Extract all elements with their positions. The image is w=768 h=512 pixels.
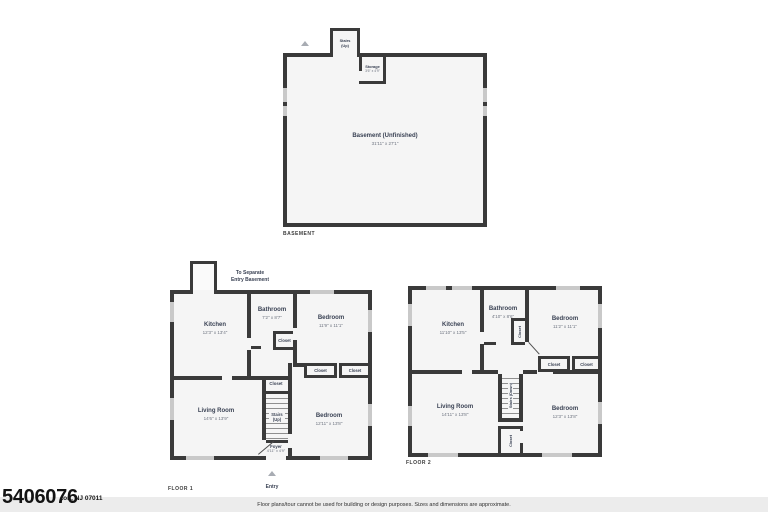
room-name: Bedroom xyxy=(296,413,362,421)
stairs-label: Stairs (Up) xyxy=(340,39,351,48)
window xyxy=(170,398,174,420)
door-opening xyxy=(520,431,523,443)
stairs-down: Stairs (Down) xyxy=(502,374,519,418)
room-dims: 11'9" x 11'1" xyxy=(298,323,364,329)
wall xyxy=(498,418,523,422)
room-dims: 31'11" x 27'1" xyxy=(320,141,450,147)
door-opening xyxy=(266,456,286,460)
room-dims: 4'11" x 4'9" xyxy=(260,449,292,454)
window xyxy=(310,290,334,294)
room-name: Bedroom xyxy=(534,406,596,414)
room-dims: 11'10" x 13'5" xyxy=(424,330,482,336)
arrow-up-icon xyxy=(301,41,309,46)
entry-label: Entry xyxy=(259,484,285,490)
room-label-bedroom-bottom: Bedroom 12'3" x 13'8" xyxy=(534,406,596,420)
window xyxy=(368,310,372,332)
room-dims: 12'11" x 13'8" xyxy=(296,421,362,427)
closet-hall: Closet xyxy=(264,381,288,386)
closet-label: Closet xyxy=(314,368,327,373)
room-label-bedroom-top: Bedroom 11'2" x 11'1" xyxy=(534,316,596,330)
basement-caption: BASEMENT xyxy=(283,231,315,237)
closet-bedroom-left: Closet xyxy=(538,356,570,372)
room-label-kitchen: Kitchen 11'10" x 13'5" xyxy=(424,322,482,336)
arrow-up-icon xyxy=(268,471,276,476)
room-name: Kitchen xyxy=(185,322,245,330)
entry-marker: Entry xyxy=(259,465,285,496)
closet-bedroom-left: Closet xyxy=(304,363,337,378)
room-name: Basement (Unfinished) xyxy=(320,133,450,141)
listing-number-watermark: 5406076 xyxy=(2,487,78,507)
room-name: Bedroom xyxy=(298,315,364,323)
wall xyxy=(412,370,462,374)
window xyxy=(186,456,214,460)
stairs-label: Stairs (Down) xyxy=(508,381,513,410)
disclaimer-text: Floor plans/tour cannot be used for buil… xyxy=(257,502,510,508)
room-label-bedroom-top: Bedroom 11'9" x 11'1" xyxy=(298,315,364,329)
room-label-foyer: Foyer 4'11" x 4'9" xyxy=(260,444,292,454)
window xyxy=(542,453,572,457)
room-name: Bathroom xyxy=(251,307,293,315)
wall xyxy=(525,290,529,342)
room-dims: 12'3" x 13'4" xyxy=(185,330,245,336)
room-dims: 11'2" x 11'1" xyxy=(534,324,596,330)
window xyxy=(408,406,412,426)
window xyxy=(408,304,412,326)
stairs-up: Stairs (Up) xyxy=(266,394,288,440)
wall xyxy=(484,342,496,345)
closet-label: Closet xyxy=(349,368,362,373)
wall xyxy=(293,294,297,328)
room-label-bathroom: Bathroom 7'2" x 8'7" xyxy=(251,307,293,321)
closet-bedroom-right: Closet xyxy=(339,363,368,378)
room-label-living-room: Living Room 14'6" x 13'9" xyxy=(186,408,246,422)
wall xyxy=(472,370,498,374)
closet-label: Closet xyxy=(278,338,291,343)
disclaimer-bar: Floor plans/tour cannot be used for buil… xyxy=(0,497,768,512)
window xyxy=(483,106,487,116)
storage-room: Storage 3'6" x 4'9" xyxy=(359,57,386,84)
window xyxy=(598,304,602,328)
window xyxy=(452,286,472,290)
window xyxy=(556,286,580,290)
window xyxy=(483,88,487,102)
room-dims: 14'11" x 13'8" xyxy=(424,412,486,418)
floor1-floorplan: Closet Closet Closet Closet Stairs (Up) … xyxy=(170,290,372,460)
room-label-basement: Basement (Unfinished) 31'11" x 27'1" xyxy=(320,133,450,147)
wall xyxy=(251,346,261,349)
wall xyxy=(174,376,222,380)
closet-bathroom: Closet xyxy=(273,331,293,350)
room-dims: 14'6" x 13'9" xyxy=(186,416,246,422)
closet-bathroom: Closet xyxy=(511,318,525,345)
wall xyxy=(288,363,292,434)
closet-bedroom-right: Closet xyxy=(572,356,598,372)
floor1-caption: FLOOR 1 xyxy=(168,486,193,492)
room-dims: 4'10" x 8'6" xyxy=(482,314,524,320)
window xyxy=(170,302,174,322)
room-name: Kitchen xyxy=(424,322,482,330)
wall xyxy=(266,440,288,443)
wall xyxy=(523,370,537,374)
room-name: Living Room xyxy=(424,404,486,412)
room-label-bedroom-bottom: Bedroom 12'11" x 13'8" xyxy=(296,413,362,427)
window xyxy=(283,88,287,102)
closet-label: Closet xyxy=(580,362,593,367)
room-label-living-room: Living Room 14'11" x 13'8" xyxy=(424,404,486,418)
room-label-bathroom: Bathroom 4'10" x 8'6" xyxy=(482,306,524,320)
window xyxy=(426,286,446,290)
room-dims: 12'3" x 13'8" xyxy=(534,414,596,420)
floor2-floorplan: Closet Closet Closet Stairs (Down) Close… xyxy=(408,286,602,457)
closet-label: Closet xyxy=(517,324,522,340)
room-dims: 3'6" x 4'9" xyxy=(365,69,380,73)
window xyxy=(368,404,372,426)
window xyxy=(283,106,287,116)
door-opening xyxy=(359,71,362,81)
stairs-label: Stairs (Up) xyxy=(269,411,284,423)
floorplan-sheet: Stairs (Up) To Home Storage 3'6" x 4'9" … xyxy=(0,0,768,512)
window xyxy=(320,456,348,460)
room-name: Living Room xyxy=(186,408,246,416)
wall xyxy=(519,374,523,418)
room-name: Bedroom xyxy=(534,316,596,324)
room-label-kitchen: Kitchen 12'3" x 13'4" xyxy=(185,322,245,336)
door-swing xyxy=(528,342,539,355)
closet-label: Closet xyxy=(548,362,561,367)
wall xyxy=(232,376,288,380)
floor2-caption: FLOOR 2 xyxy=(406,460,431,466)
room-name: Bathroom xyxy=(482,306,524,314)
closet-label: Closet xyxy=(508,433,513,449)
window xyxy=(598,402,602,424)
door-opening xyxy=(333,53,357,57)
separate-entry-label: To Separate Entry Basement xyxy=(220,270,280,283)
basement-floorplan: Storage 3'6" x 4'9" Basement (Unfinished… xyxy=(283,53,487,227)
room-dims: 7'2" x 8'7" xyxy=(251,315,293,321)
window xyxy=(428,453,458,457)
door-opening xyxy=(193,290,214,294)
wall xyxy=(293,340,297,363)
closet-label: Closet xyxy=(264,381,288,386)
